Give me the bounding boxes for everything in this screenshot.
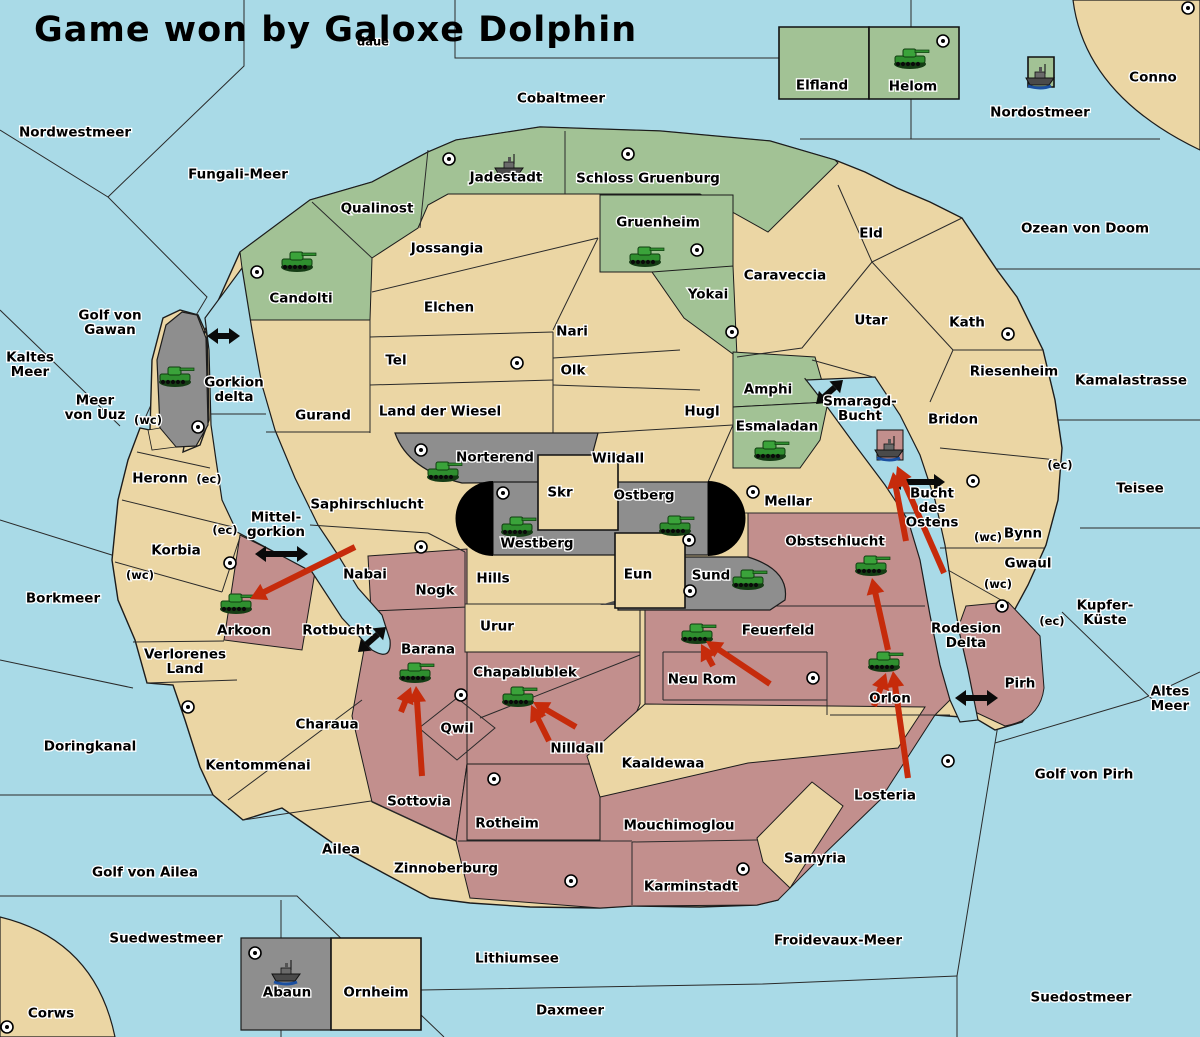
region-label: Eun bbox=[624, 567, 652, 583]
green-region bbox=[600, 195, 733, 272]
supply-center-icon bbox=[937, 35, 949, 47]
region-label: Rotheim bbox=[475, 816, 539, 832]
region-label: Kath bbox=[949, 315, 985, 331]
supply-center-icon bbox=[726, 326, 738, 338]
region-label: Mittel-gorkion bbox=[247, 510, 305, 541]
region-label: Urur bbox=[480, 619, 514, 635]
region-label: Orlon bbox=[869, 691, 911, 707]
region-label: Abaun bbox=[263, 985, 311, 1001]
supply-center-icon bbox=[497, 487, 509, 499]
region-label: Helom bbox=[889, 79, 937, 95]
region-label: Yokai bbox=[687, 287, 729, 303]
region-label: Bynn bbox=[1004, 526, 1042, 542]
region-label: Olk bbox=[560, 363, 586, 379]
supply-center-icon bbox=[511, 357, 523, 369]
region-label: Golf von Pirh bbox=[1035, 767, 1134, 783]
region-label: KaltesMeer bbox=[6, 350, 54, 381]
region-label: Chapablublek bbox=[473, 665, 578, 681]
supply-center-icon bbox=[249, 947, 261, 959]
region-label: Suedwestmeer bbox=[109, 931, 223, 947]
supply-center-icon bbox=[737, 863, 749, 875]
supply-center-icon bbox=[807, 672, 819, 684]
region-label: Skr bbox=[547, 485, 573, 501]
region-label: Nordwestmeer bbox=[19, 125, 131, 141]
supply-center-icon bbox=[415, 541, 427, 553]
region-label: Ailea bbox=[322, 842, 360, 858]
supply-center-icon bbox=[1002, 328, 1014, 340]
region-label: Riesenheim bbox=[970, 364, 1058, 380]
region-label: Elfland bbox=[796, 78, 848, 94]
region-label: Rotbucht bbox=[302, 623, 372, 639]
region-label: Obstschlucht bbox=[785, 534, 885, 550]
region-label: Gurand bbox=[295, 408, 351, 424]
region-label: Corws bbox=[28, 1006, 74, 1022]
region-label: Teisee bbox=[1116, 481, 1164, 497]
region-label: Kentommenai bbox=[205, 758, 310, 774]
region-label: Saphirschlucht bbox=[310, 497, 424, 513]
coast-tag-label: (ec) bbox=[212, 523, 237, 537]
region-label: Neu Rom bbox=[668, 672, 737, 688]
region-label: Froidevaux-Meer bbox=[774, 933, 902, 949]
region-label: Sund bbox=[692, 568, 731, 584]
region-label: Korbia bbox=[151, 543, 201, 559]
supply-center-icon bbox=[251, 266, 263, 278]
region-label: Caraveccia bbox=[744, 268, 826, 284]
region-label: Kamalastrasse bbox=[1075, 373, 1187, 389]
coast-tag-label: (ec) bbox=[1039, 614, 1064, 628]
supply-center-icon bbox=[224, 557, 236, 569]
region-label: Land der Wiesel bbox=[379, 404, 501, 420]
region-label: Westberg bbox=[500, 536, 573, 552]
supply-center-icon bbox=[488, 773, 500, 785]
region-label: Nordostmeer bbox=[990, 105, 1090, 121]
supply-center-icon bbox=[967, 475, 979, 487]
region-label: Karminstadt bbox=[644, 879, 739, 895]
supply-center-icon bbox=[192, 421, 204, 433]
region-label: Bridon bbox=[928, 412, 978, 428]
supply-center-icon bbox=[747, 486, 759, 498]
region-label: Schloss Gruenburg bbox=[576, 171, 720, 187]
region-label: Arkoon bbox=[217, 623, 271, 639]
region-label: Charaua bbox=[295, 717, 358, 733]
coast-tag-label: (wc) bbox=[134, 413, 162, 427]
region-label: Gruenheim bbox=[616, 215, 700, 231]
region-label: Hugl bbox=[684, 404, 719, 420]
supply-center-icon bbox=[942, 755, 954, 767]
region-label: Jadestadt bbox=[469, 170, 543, 186]
region-label: Mouchimoglou bbox=[623, 818, 734, 834]
region-label: Lithiumsee bbox=[475, 951, 559, 967]
region-label: Conno bbox=[1129, 70, 1177, 86]
region-label: Eld bbox=[859, 226, 883, 242]
region-label: Feuerfeld bbox=[742, 623, 815, 639]
region-label: Suedostmeer bbox=[1031, 990, 1132, 1006]
region-label: Ostberg bbox=[613, 488, 674, 504]
region-label: Barana bbox=[401, 642, 455, 658]
region-label: Fungali-Meer bbox=[188, 167, 288, 183]
region-label: Losteria bbox=[854, 788, 916, 804]
region-label: Nari bbox=[556, 324, 588, 340]
region-label: Kupfer-Küste bbox=[1077, 598, 1134, 629]
region-label: Jossangia bbox=[410, 241, 484, 257]
region-label: Nabai bbox=[343, 567, 387, 583]
coast-tag-label: (wc) bbox=[984, 577, 1012, 591]
region-label: Daxmeer bbox=[536, 1003, 604, 1019]
coast-tag-label: (wc) bbox=[974, 530, 1002, 544]
region-label: Hills bbox=[476, 571, 509, 587]
region-label: Nilldall bbox=[550, 741, 603, 757]
supply-center-icon bbox=[455, 689, 467, 701]
game-map: daueNordwestmeerFungali-MeerCobaltmeerNo… bbox=[0, 0, 1200, 1037]
region-label: Nogk bbox=[415, 583, 455, 599]
supply-center-icon bbox=[565, 875, 577, 887]
supply-center-icon bbox=[683, 534, 695, 546]
region-label: Heronn bbox=[132, 471, 188, 487]
supply-center-icon bbox=[684, 585, 696, 597]
page-title: Game won by Galoxe Dolphin bbox=[34, 10, 637, 50]
supply-center-icon bbox=[443, 153, 455, 165]
region-label: AltesMeer bbox=[1151, 684, 1190, 715]
supply-center-icon bbox=[996, 600, 1008, 612]
region-label: Pirh bbox=[1005, 676, 1036, 692]
region-label: Elchen bbox=[424, 300, 474, 316]
coast-tag-label: (ec) bbox=[1047, 458, 1072, 472]
supply-center-icon bbox=[182, 701, 194, 713]
region-label: Qualinost bbox=[341, 201, 414, 217]
region-label: Esmaladan bbox=[736, 419, 819, 435]
region-label: Wildall bbox=[592, 451, 644, 467]
region-label: Borkmeer bbox=[26, 591, 101, 607]
region-label: Gwaul bbox=[1005, 556, 1052, 572]
region-label: Samyria bbox=[784, 851, 846, 867]
region-label: Candolti bbox=[269, 291, 332, 307]
region-label: Qwil bbox=[440, 721, 473, 737]
region-label: Kaaldewaa bbox=[622, 756, 705, 772]
region-label: Utar bbox=[854, 313, 888, 329]
region-label: Golf vonGawan bbox=[78, 308, 141, 339]
region-label: Ozean von Doom bbox=[1021, 221, 1149, 237]
supply-center-icon bbox=[1, 1021, 13, 1033]
region-label: Golf von Ailea bbox=[92, 865, 198, 881]
region-label: Amphi bbox=[744, 382, 792, 398]
region-label: Tel bbox=[385, 353, 406, 369]
supply-center-icon bbox=[415, 444, 427, 456]
region-label: Cobaltmeer bbox=[517, 91, 605, 107]
coast-tag-label: (ec) bbox=[196, 472, 221, 486]
region-label: Zinnoberburg bbox=[394, 861, 498, 877]
region-label: Sottovia bbox=[387, 794, 451, 810]
supply-center-icon bbox=[1182, 2, 1194, 14]
supply-center-icon bbox=[691, 244, 703, 256]
map-canvas: daueNordwestmeerFungali-MeerCobaltmeerNo… bbox=[0, 0, 1200, 1037]
region-label: Ornheim bbox=[343, 985, 408, 1001]
coast-tag-label: (wc) bbox=[126, 568, 154, 582]
region-label: Mellar bbox=[764, 494, 812, 510]
supply-center-icon bbox=[622, 148, 634, 160]
region-label: Doringkanal bbox=[44, 739, 136, 755]
region-label: Norterend bbox=[456, 450, 534, 466]
